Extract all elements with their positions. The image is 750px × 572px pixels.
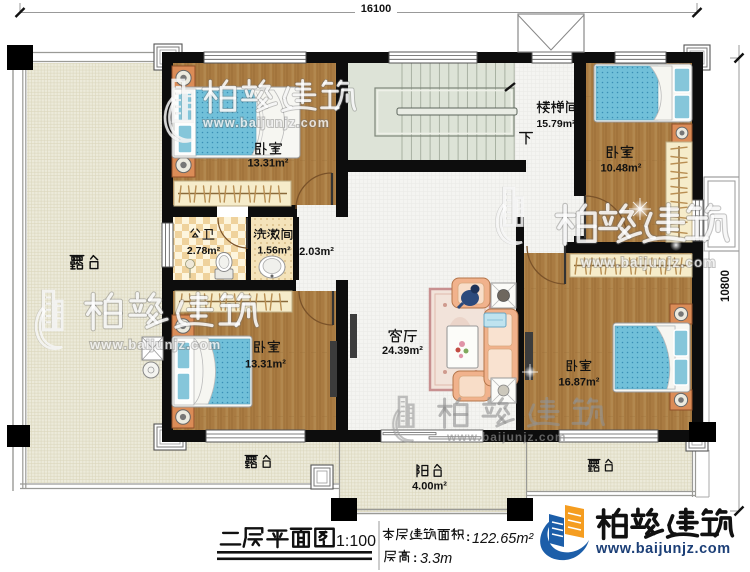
svg-text:15.79m²: 15.79m² [536, 118, 576, 130]
svg-text:2.78m²: 2.78m² [187, 245, 221, 257]
svg-text:10.48m²: 10.48m² [601, 163, 642, 175]
svg-text:www.baijunjz.com: www.baijunjz.com [202, 116, 330, 130]
svg-text::: : [413, 550, 417, 565]
svg-text:1.56m²: 1.56m² [257, 245, 291, 257]
svg-text:13.31m²: 13.31m² [248, 158, 289, 170]
svg-text:www.baijunjz.com: www.baijunjz.com [89, 337, 221, 352]
svg-text::: : [466, 529, 470, 544]
svg-text:www.baijunjz.com: www.baijunjz.com [446, 430, 567, 444]
svg-text:1:100: 1:100 [336, 533, 376, 550]
svg-text:2.03m²: 2.03m² [299, 246, 334, 258]
svg-text:13.31m²: 13.31m² [245, 359, 286, 371]
svg-text:3.3m: 3.3m [420, 551, 452, 567]
svg-text:10800: 10800 [720, 270, 732, 302]
svg-text:16.87m²: 16.87m² [559, 377, 600, 389]
svg-text:24.39m²: 24.39m² [382, 345, 423, 357]
svg-text:4.00m²: 4.00m² [412, 481, 447, 493]
svg-text:122.65m²: 122.65m² [472, 531, 534, 547]
svg-text:www.baijunjz.com: www.baijunjz.com [580, 255, 717, 270]
svg-text:www.baijunjz.com: www.baijunjz.com [595, 541, 731, 557]
svg-text:16100: 16100 [361, 3, 392, 15]
